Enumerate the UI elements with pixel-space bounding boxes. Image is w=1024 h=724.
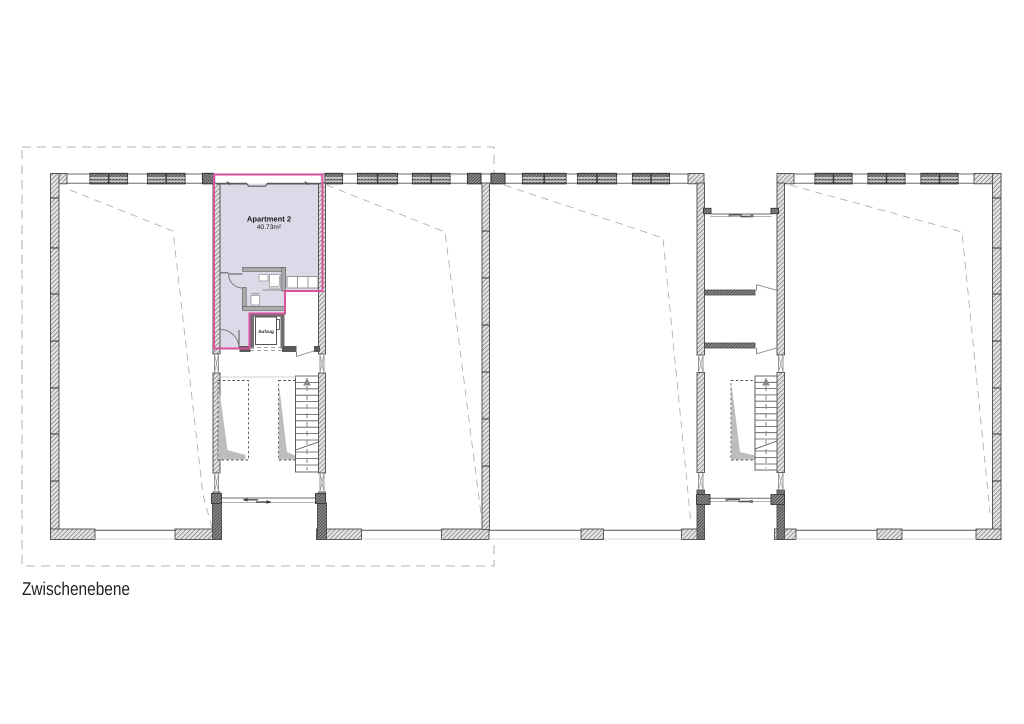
svg-text:40.73m²: 40.73m² xyxy=(257,224,282,231)
svg-text:Aufzug: Aufzug xyxy=(258,329,274,334)
svg-text:Apartment 2: Apartment 2 xyxy=(247,215,291,224)
svg-text:Zwischenebene: Zwischenebene xyxy=(22,578,130,599)
